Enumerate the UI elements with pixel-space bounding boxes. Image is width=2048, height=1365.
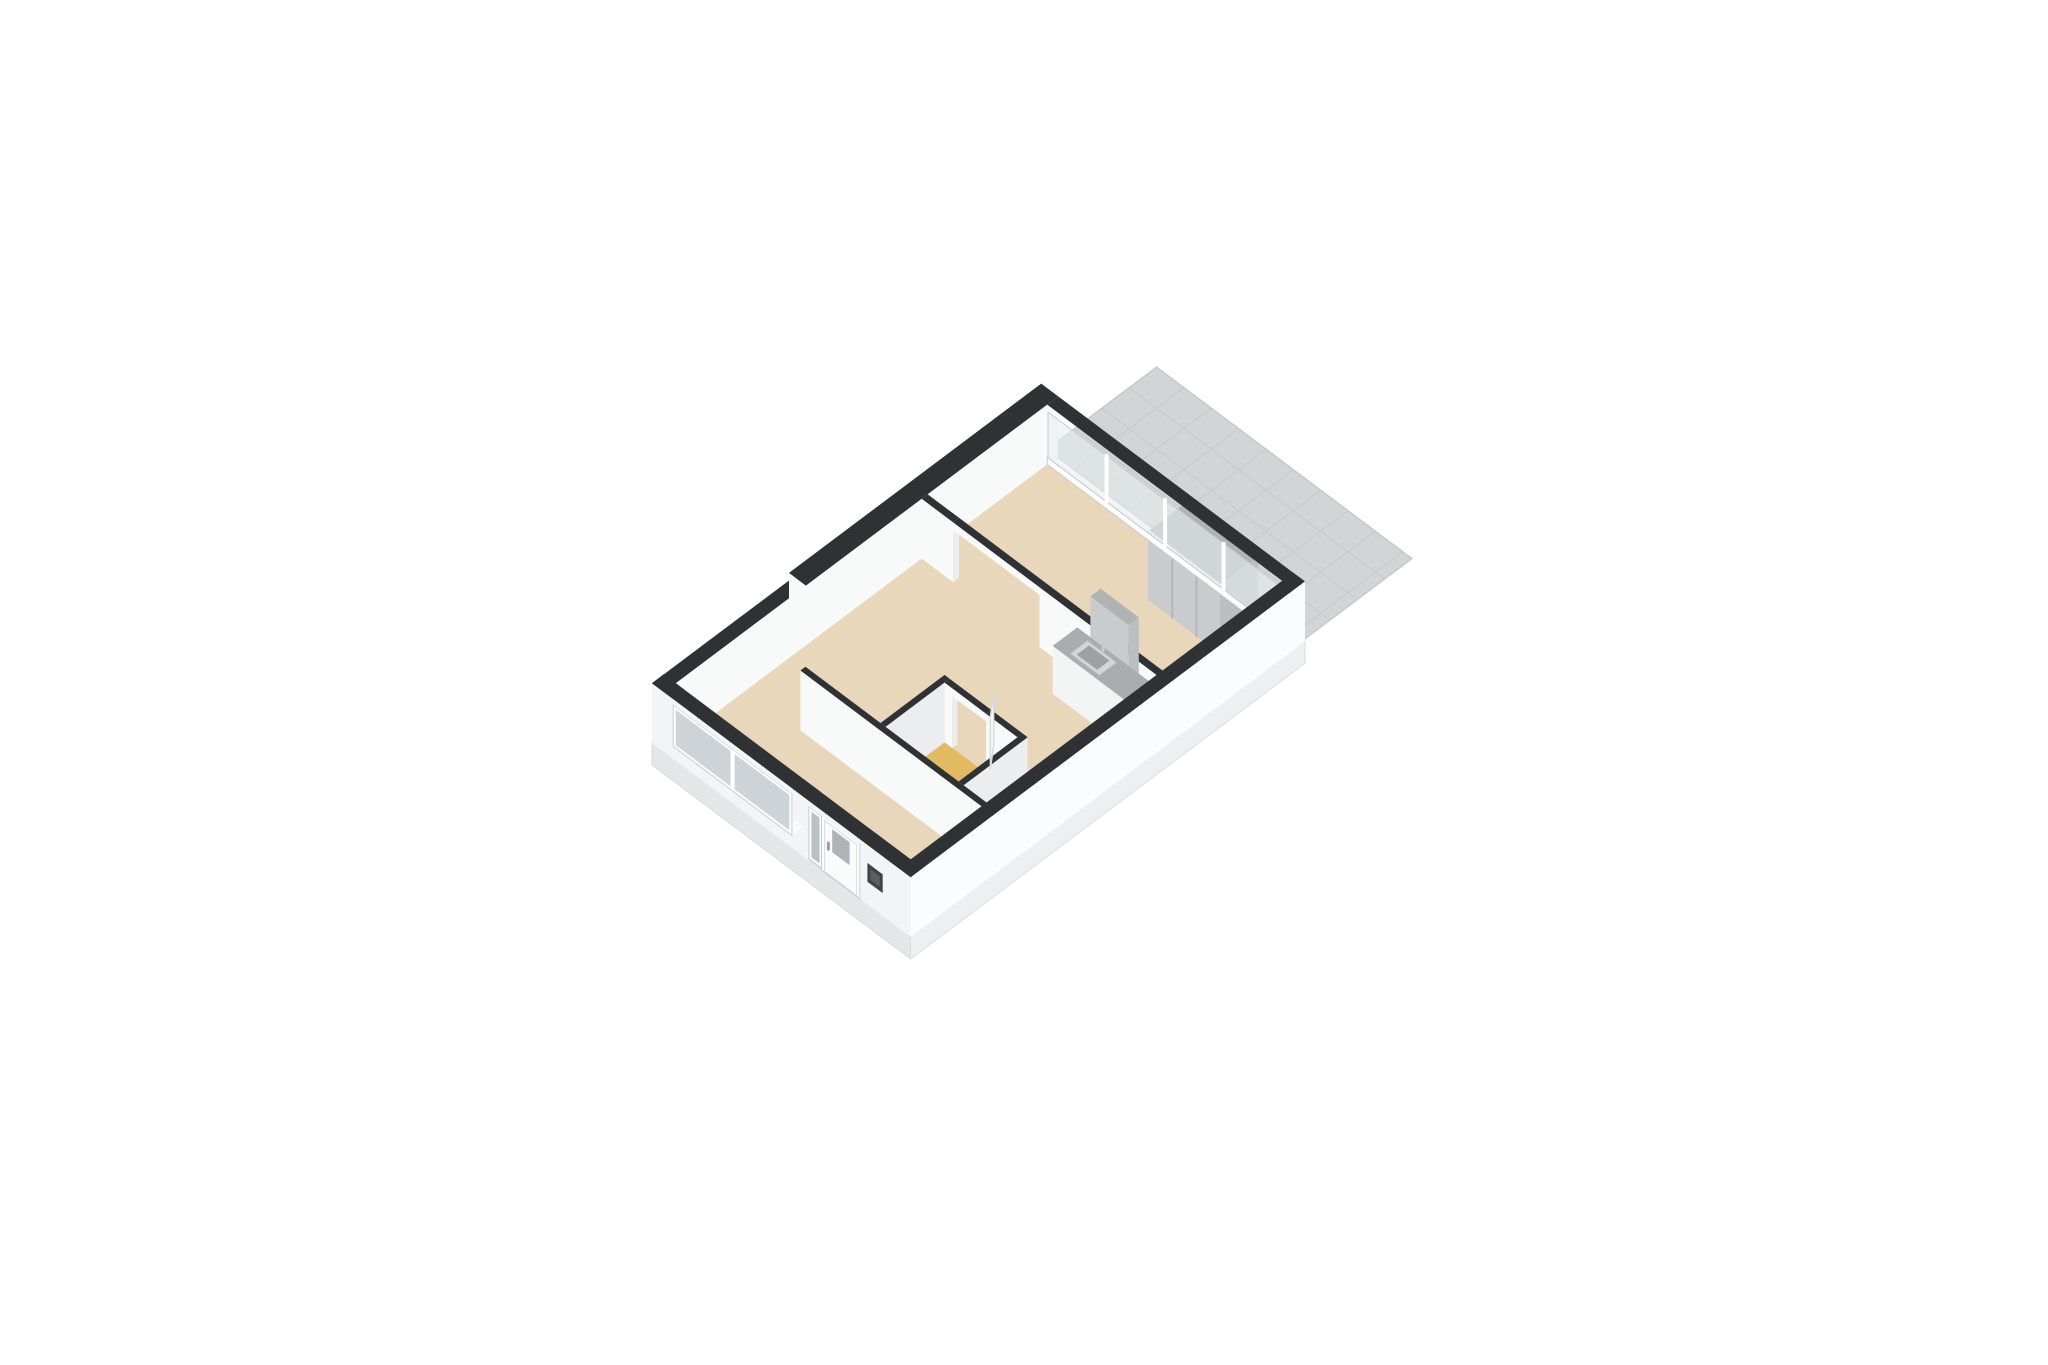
bathroom-wall-right-a-face-left: [945, 683, 953, 749]
floorplan-canvas: [0, 0, 2048, 1365]
floorplan-3d: [0, 0, 2048, 1365]
wall-south-east-face-left: [899, 868, 911, 937]
entry-sidelight-glass: [811, 812, 819, 864]
wall-north-west-b-face-left: [789, 573, 806, 646]
page: { "scene": { "canvas": { "width": 2048, …: [0, 0, 2048, 1365]
